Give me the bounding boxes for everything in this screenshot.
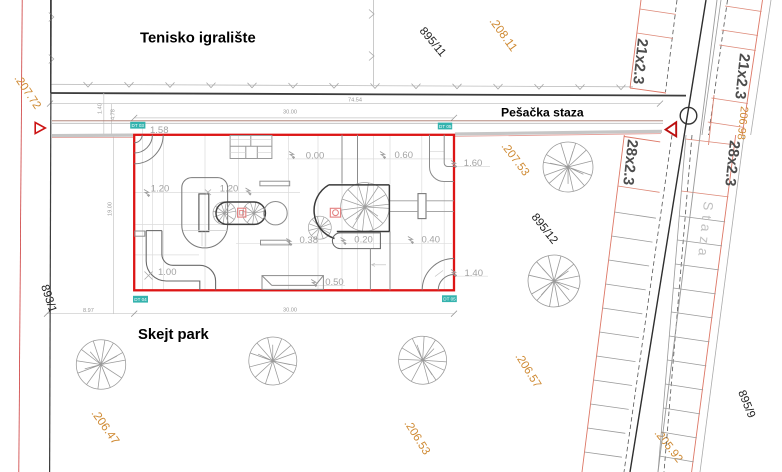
svg-text:0.60: 0.60 [395,150,414,161]
svg-text:1.00: 1.00 [158,267,177,278]
svg-text:Pešačka staza: Pešačka staza [501,106,584,120]
svg-text:0.20: 0.20 [354,234,373,245]
svg-text:8.97: 8.97 [83,308,94,314]
svg-text:0.40: 0.40 [422,234,441,245]
svg-text:30.00: 30.00 [283,110,297,116]
svg-text:DT 04: DT 04 [134,297,147,302]
svg-text:1.20: 1.20 [220,183,239,194]
svg-text:1.20: 1.20 [151,183,170,194]
svg-text:0.38: 0.38 [300,235,319,246]
svg-text:4.78: 4.78 [111,109,117,120]
svg-text:30.00: 30.00 [283,308,297,314]
svg-text:Skejt park: Skejt park [138,327,210,343]
svg-text:1.40: 1.40 [465,268,484,279]
svg-text:1.40: 1.40 [98,103,104,114]
svg-text:DT 03: DT 03 [132,123,145,128]
svg-text:0.50: 0.50 [325,277,344,288]
svg-text:1.60: 1.60 [464,158,483,169]
svg-text:Tenisko igralište: Tenisko igralište [140,31,256,47]
svg-text:DT 05: DT 05 [443,297,456,302]
svg-text:0.00: 0.00 [306,151,325,162]
svg-text:19.00: 19.00 [108,202,114,216]
svg-text:DT 05: DT 05 [439,124,452,129]
svg-text:74.54: 74.54 [348,98,362,104]
